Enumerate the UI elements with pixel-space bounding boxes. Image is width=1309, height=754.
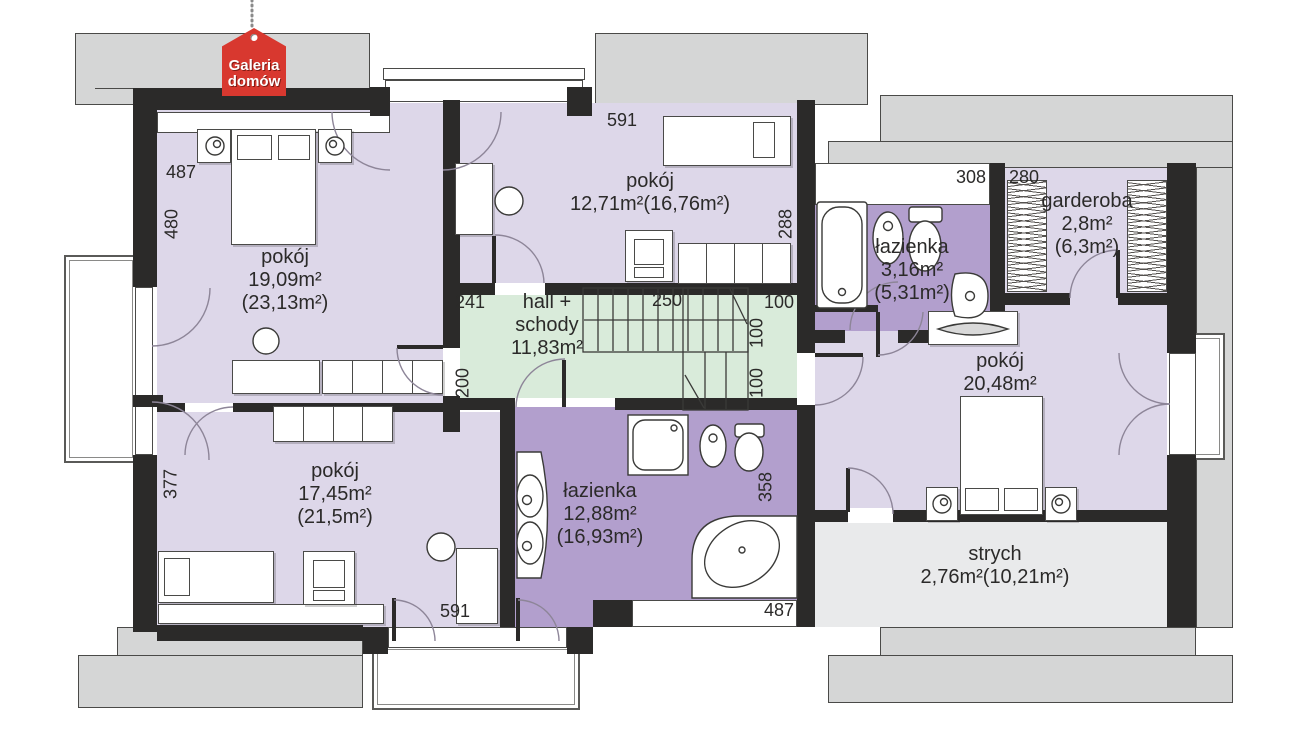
bed-pokoj12 bbox=[663, 116, 791, 166]
pillow bbox=[965, 488, 999, 511]
roof-band-bottom-right-lower bbox=[828, 655, 1233, 703]
armchair-base bbox=[634, 267, 664, 278]
desk-pokoj12 bbox=[455, 163, 493, 235]
wall-garderoba-bottom-a bbox=[1005, 293, 1070, 305]
door-leaf-strych bbox=[846, 468, 850, 512]
wall-divider-left-rooms-a bbox=[157, 403, 185, 412]
dormer-sill-top bbox=[383, 68, 585, 80]
door-leaf-pokoj12 bbox=[492, 236, 496, 283]
roof-band-top-mid bbox=[595, 33, 868, 105]
room-label-garderoba: garderoba 2,8m² (6,3m²) bbox=[1041, 190, 1132, 259]
room-label-pokoj19: pokój 19,09m² (23,13m²) bbox=[242, 246, 329, 315]
balcony-left bbox=[64, 255, 138, 463]
window-left-wall bbox=[135, 287, 153, 455]
logo-text-line1: Galeria bbox=[229, 58, 280, 74]
door-leaf-hall-lazienka12 bbox=[562, 360, 566, 407]
nightstand bbox=[197, 129, 231, 163]
wall-hall-bottom-a bbox=[460, 398, 515, 410]
armchair-pokoj17 bbox=[303, 551, 355, 605]
wardrobe-pokoj19 bbox=[322, 360, 443, 394]
dim-hall-100a: 100 bbox=[764, 292, 794, 313]
room-label-pokoj17: pokój 17,45m² (21,5m²) bbox=[297, 460, 373, 529]
roof-band-top-right-upper bbox=[880, 95, 1233, 142]
dim-hall-241: 241 bbox=[455, 292, 485, 313]
dresser-pokoj20 bbox=[928, 311, 1018, 345]
strych-door-gap bbox=[848, 508, 893, 523]
dormer-window-top bbox=[385, 80, 583, 102]
armchair-pokoj12 bbox=[625, 230, 673, 282]
dim-stairs-250: 250 bbox=[652, 290, 682, 311]
wall-right-lower bbox=[1167, 455, 1196, 627]
dim-garderoba-width: 280 bbox=[1009, 167, 1039, 188]
wall-dormer-left-block bbox=[370, 87, 390, 116]
dim-top-width: 591 bbox=[607, 110, 637, 131]
wall-bottom-block-a bbox=[363, 627, 388, 654]
floor-plan: pokój 19,09m² (23,13m²) pokój 12,71m²(16… bbox=[0, 0, 1309, 754]
dim-hall-200: 200 bbox=[453, 368, 474, 398]
wall-v4-bath12 bbox=[500, 410, 515, 627]
wall-v2-lower bbox=[797, 405, 815, 627]
shelf-pokoj17 bbox=[158, 604, 384, 624]
wall-divider-bath3-garderoba bbox=[990, 163, 1005, 332]
pillow bbox=[237, 135, 272, 160]
wardrobe-pokoj12 bbox=[678, 243, 791, 284]
wall-v3-lower bbox=[443, 396, 460, 432]
wall-left-upper bbox=[133, 110, 157, 287]
wall-hall-bottom-b bbox=[615, 398, 797, 410]
wall-strych-top-a bbox=[815, 510, 848, 522]
dim-room12-depth: 288 bbox=[776, 209, 797, 239]
dim-left-height: 480 bbox=[162, 209, 183, 239]
door-leaf-balcony-lazienka12 bbox=[516, 598, 520, 641]
wall-dormer-right-block bbox=[567, 87, 592, 116]
pillow bbox=[164, 558, 190, 596]
dim-left-width: 487 bbox=[166, 162, 196, 183]
roof-band-bottom-left-lower bbox=[78, 655, 363, 708]
wall-lazienka3-bottom-a bbox=[815, 330, 845, 343]
dim-pokoj17-height: 377 bbox=[161, 469, 182, 499]
wall-right-upper bbox=[1167, 163, 1196, 353]
room-label-strych: strych 2,76m²(10,21m²) bbox=[921, 543, 1070, 589]
nightstand bbox=[1045, 487, 1077, 521]
french-door-band-pokoj20 bbox=[1169, 353, 1196, 455]
logo-text-line2: domów bbox=[228, 74, 281, 90]
room-label-pokoj12: pokój 12,71m²(16,76m²) bbox=[570, 170, 730, 216]
armchair-base bbox=[313, 590, 345, 601]
dim-bath12-width: 487 bbox=[764, 600, 794, 621]
armchair-seat bbox=[634, 239, 664, 265]
nightstand bbox=[318, 129, 352, 163]
dim-bottom-width: 591 bbox=[440, 601, 470, 622]
armchair-seat bbox=[313, 560, 345, 588]
pillow bbox=[1004, 488, 1038, 511]
bed-pokoj17 bbox=[158, 551, 274, 603]
wall-bottom-lazienka12-stub bbox=[593, 600, 632, 627]
logo-hole bbox=[251, 34, 258, 41]
door-leaf-pokoj20 bbox=[876, 312, 880, 357]
bed-pokoj19 bbox=[231, 129, 316, 245]
balcony-bottom bbox=[372, 644, 580, 710]
wardrobe-hatch-right bbox=[1127, 180, 1167, 292]
dim-hall-100b: 100 bbox=[747, 318, 768, 348]
room-label-lazienka3: łazienka 3,16m² (5,31m²) bbox=[874, 236, 950, 305]
wall-bottom-block-b bbox=[567, 627, 593, 654]
wall-h5-stub bbox=[815, 305, 878, 312]
bed-pokoj20 bbox=[960, 396, 1043, 515]
door-leaf-hall-right bbox=[815, 353, 863, 357]
wall-v2-upper bbox=[797, 100, 815, 353]
door-leaf-balcony-pokoj17 bbox=[392, 598, 396, 641]
room-label-lazienka12: łazienka 12,88m² (16,93m²) bbox=[557, 480, 644, 549]
wall-left-lower bbox=[133, 455, 157, 632]
dim-bath12-depth: 358 bbox=[756, 472, 777, 502]
wall-bottom-left bbox=[157, 625, 363, 641]
door-leaf-hall-pokoj19 bbox=[397, 345, 443, 349]
roof-band-bottom-right-upper bbox=[880, 627, 1196, 656]
desk-pokoj19 bbox=[232, 360, 320, 394]
room-label-pokoj20: pokój 20,48m² bbox=[963, 350, 1036, 396]
dim-bath3-width: 308 bbox=[956, 167, 986, 188]
window-band-bottom-balcony bbox=[388, 627, 567, 648]
wall-garderoba-bottom-b bbox=[1118, 293, 1167, 305]
dim-hall-100c: 100 bbox=[747, 368, 768, 398]
wardrobe-pokoj17 bbox=[273, 406, 393, 442]
pillow bbox=[753, 122, 775, 158]
room-label-hall: hall + schody 11,83m² bbox=[511, 291, 583, 360]
pillow bbox=[278, 135, 310, 160]
nightstand bbox=[926, 487, 958, 521]
